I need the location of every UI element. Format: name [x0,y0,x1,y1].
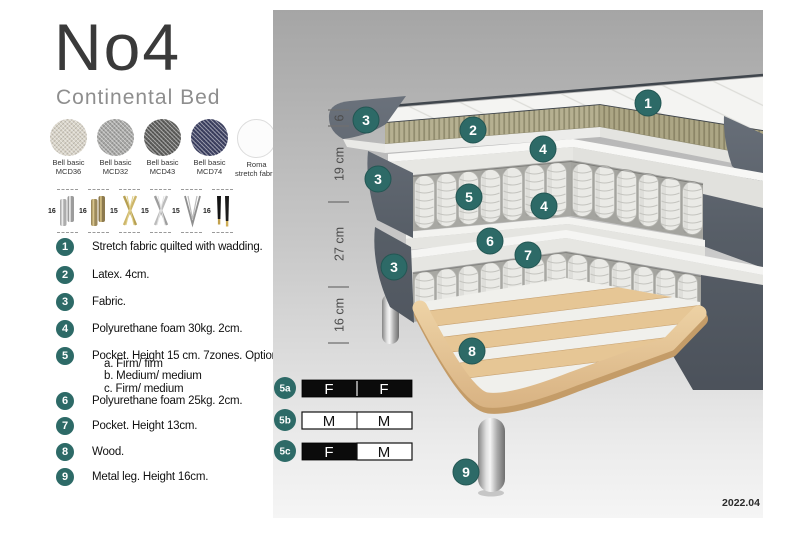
leg-hairpin-icon [181,189,202,233]
fabric-swatch: Bell basicMCD43 [141,119,184,178]
callout-3: 3 [365,166,391,192]
fabric-swatch-circle [191,119,228,156]
svg-text:3: 3 [390,259,398,275]
leg-height: 16 [79,208,88,215]
leg-option: 16 [79,189,110,233]
fabric-swatch-circle [97,119,134,156]
feature-item: 9 Metal leg. Height 16cm. [56,468,208,486]
feature-item: 2 Latex. 4cm. [56,266,149,284]
svg-text:7: 7 [524,247,532,263]
leg-options: 16 16 15 [48,189,234,233]
fabric-swatch: Romastretch fabric [235,119,278,178]
version-label: 2022.04 [722,497,760,509]
firmness-cell: F [324,444,333,461]
svg-text:9: 9 [462,464,470,480]
feature-option: a. Firm/ firm [104,358,202,370]
svg-text:3: 3 [362,112,370,128]
feature-text: Latex. 4cm. [92,266,149,284]
callout-6: 6 [477,228,503,254]
fabric-swatch: Bell basicMCD32 [94,119,137,178]
leg-cross-gold-icon [119,189,140,233]
fabric-swatch-label: Romastretch fabric [235,161,278,178]
feature-item: 3 Fabric. [56,293,126,311]
firmness-cell: M [323,413,336,430]
feature-text: Wood. [92,443,124,461]
leg-cross-silver-icon [150,189,171,233]
svg-text:1: 1 [644,95,652,111]
feature-item: 8 Wood. [56,443,124,461]
fabric-swatch: Bell basicMCD74 [188,119,231,178]
callout-2: 2 [460,117,486,143]
fabric-swatch-circle [237,119,276,158]
feature-text: Pocket. Height 13cm. [92,417,197,435]
product-sheet: No4 Continental Bed Bell basicMCD36 Bell… [0,0,800,533]
feature-list: 1 Stretch fabric quilted with wadding. 2… [56,238,281,498]
svg-text:2: 2 [469,122,477,138]
feature-text: Metal leg. Height 16cm. [92,468,208,486]
callout-4: 4 [530,136,556,162]
leg-tapered-black-gold-icon [212,189,233,233]
feature-item: 1 Stretch fabric quilted with wadding. [56,238,263,256]
product-name: No4 [54,14,181,80]
dimension-label: 16 cm [332,298,346,332]
leg-height: 16 [203,208,212,215]
metal-leg-front [478,418,505,492]
callout-7: 7 [515,242,541,268]
feature-text: Polyurethane foam 25kg. 2cm. [92,392,242,410]
leg-option: 16 [48,189,79,233]
firmness-cell: F [324,381,333,398]
fabric-swatch-circle [144,119,181,156]
callout-3: 3 [381,254,407,280]
dimension-label: 19 cm [332,147,346,181]
leg-height: 15 [172,208,181,215]
svg-text:6: 6 [486,233,494,249]
callout-3: 3 [353,107,379,133]
leg-option: 15 [141,189,172,233]
feature-text: Stretch fabric quilted with wadding. [92,238,263,256]
firmness-options: 5a F F 5b M M 5c F M [274,377,412,462]
fabric-swatch-label: Bell basicMCD74 [188,159,231,176]
feature-number-badge: 2 [56,266,74,284]
svg-text:8: 8 [468,343,476,359]
feature-item: 6 Polyurethane foam 25kg. 2cm. [56,392,242,410]
firmness-cell: M [378,413,391,430]
svg-text:3: 3 [374,171,382,187]
feature-option: b. Medium/ medium [104,370,202,382]
leg-option: 16 [203,189,234,233]
feature-text: Polyurethane foam 30kg. 2cm. [92,320,242,338]
callout-1: 1 [635,90,661,116]
firmness-badge-label: 5c [279,447,291,458]
firmness-badge-label: 5b [279,416,291,427]
callout-8: 8 [459,338,485,364]
leg-option: 15 [172,189,203,233]
svg-text:5: 5 [465,189,473,205]
callout-4: 4 [531,193,557,219]
leg-option: 15 [110,189,141,233]
feature-number-badge: 6 [56,392,74,410]
firmness-badge-label: 5a [279,384,291,395]
leg-height: 15 [110,208,119,215]
fabric-swatch-label: Bell basicMCD36 [47,159,90,176]
dimension-label: 6 [332,114,346,121]
feature-number-badge: 8 [56,443,74,461]
leg-cylinder-silver-icon [57,189,78,233]
feature-number-badge: 4 [56,320,74,338]
fabric-swatch-circle [50,119,87,156]
feature-number-badge: 5 [56,347,74,365]
product-type: Continental Bed [56,86,220,110]
firmness-cell: M [378,444,391,461]
leg-cylinder-brass-icon [88,189,109,233]
fabric-swatch: Bell basicMCD36 [47,119,90,178]
svg-text:4: 4 [539,141,547,157]
fabric-swatch-label: Bell basicMCD32 [94,159,137,176]
fabric-swatches: Bell basicMCD36 Bell basicMCD32 Bell bas… [47,119,278,178]
feature-text: Fabric. [92,293,126,311]
feature-number-badge: 3 [56,293,74,311]
dimension-label: 27 cm [332,227,346,261]
fabric-swatch-label: Bell basicMCD43 [141,159,184,176]
leg-height: 16 [48,208,57,215]
callout-9: 9 [453,459,479,485]
firmness-cell: F [379,381,388,398]
bed-cutaway-diagram: 6 19 cm 27 cm 16 cm 3 2 1 4 3 5 4 6 7 3 … [273,10,763,518]
feature-item: 7 Pocket. Height 13cm. [56,417,197,435]
leg-height: 15 [141,208,150,215]
feature-number-badge: 7 [56,417,74,435]
feature-number-badge: 1 [56,238,74,256]
svg-text:4: 4 [540,198,548,214]
feature-options: a. Firm/ firm b. Medium/ medium c. Firm/… [104,358,202,395]
feature-number-badge: 9 [56,468,74,486]
callout-5: 5 [456,184,482,210]
feature-item: 4 Polyurethane foam 30kg. 2cm. [56,320,242,338]
bed-cutaway-svg: 6 19 cm 27 cm 16 cm 3 2 1 4 3 5 4 6 7 3 … [273,10,763,518]
